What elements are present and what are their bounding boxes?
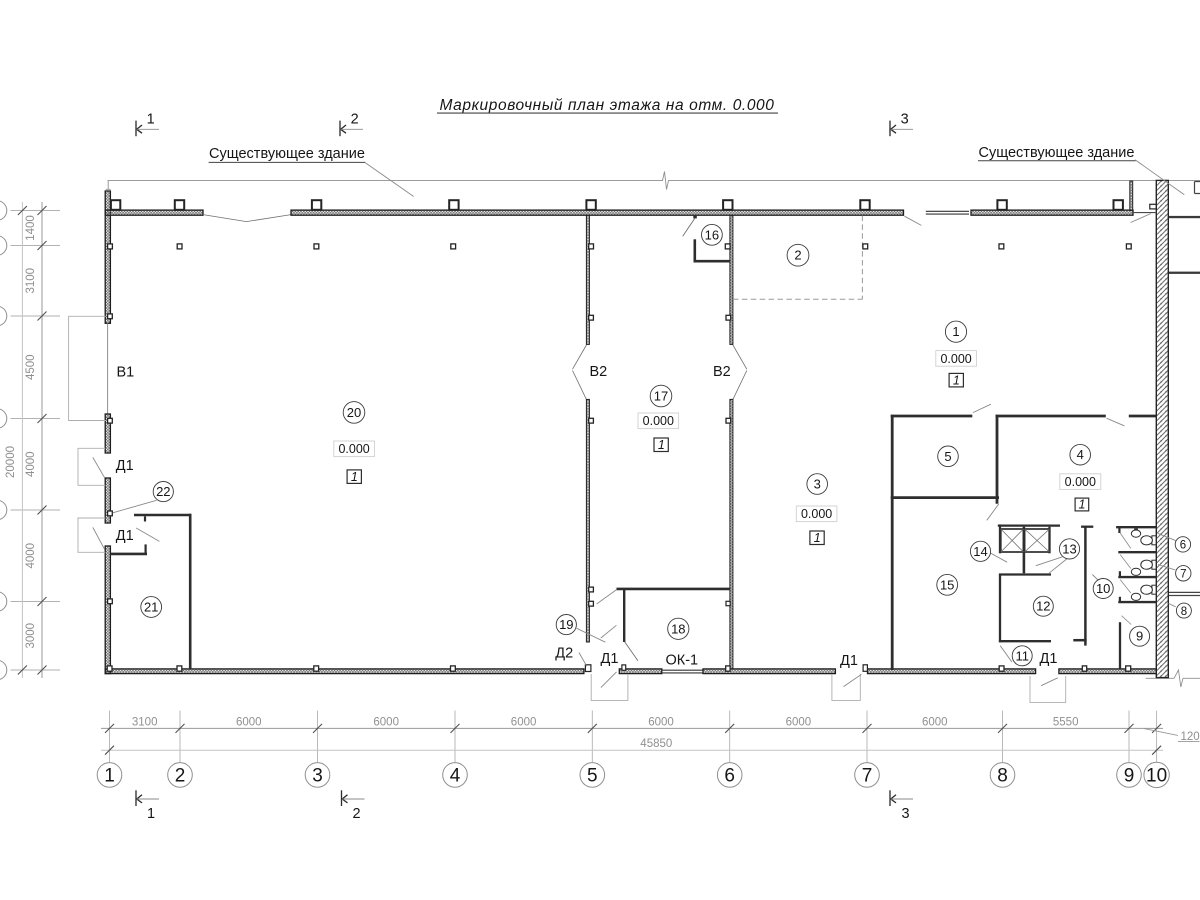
- svg-text:4: 4: [1077, 447, 1084, 462]
- svg-text:10: 10: [1146, 765, 1167, 786]
- svg-text:1: 1: [351, 470, 358, 484]
- svg-text:1400: 1400: [25, 215, 37, 241]
- svg-text:20000: 20000: [5, 446, 17, 478]
- svg-text:3000: 3000: [25, 623, 37, 649]
- svg-text:3: 3: [312, 765, 323, 786]
- svg-text:11: 11: [1015, 648, 1029, 663]
- svg-text:4500: 4500: [25, 354, 37, 380]
- svg-text:В2: В2: [713, 364, 731, 380]
- svg-text:1: 1: [952, 324, 959, 339]
- svg-text:6000: 6000: [648, 717, 674, 729]
- svg-text:6: 6: [1180, 540, 1186, 552]
- svg-text:3: 3: [901, 806, 909, 822]
- svg-text:1: 1: [147, 806, 155, 822]
- svg-text:Д1: Д1: [1040, 651, 1058, 667]
- svg-text:4000: 4000: [25, 451, 37, 477]
- svg-text:Д1: Д1: [601, 651, 619, 667]
- svg-text:6000: 6000: [236, 717, 262, 729]
- svg-text:7: 7: [1180, 569, 1186, 581]
- svg-text:0.000: 0.000: [338, 442, 369, 456]
- svg-text:120: 120: [1181, 731, 1200, 743]
- svg-text:14: 14: [973, 544, 987, 559]
- svg-text:ОК-1: ОК-1: [666, 652, 699, 668]
- svg-text:Существующее здание: Существующее здание: [209, 146, 365, 162]
- svg-text:3100: 3100: [25, 268, 37, 294]
- svg-text:Д1: Д1: [840, 653, 858, 669]
- svg-text:21: 21: [144, 600, 158, 615]
- svg-text:19: 19: [559, 617, 573, 632]
- svg-text:3: 3: [901, 111, 909, 127]
- svg-text:1: 1: [1079, 498, 1086, 512]
- svg-text:1: 1: [147, 111, 155, 127]
- svg-text:8: 8: [997, 765, 1008, 786]
- svg-text:5: 5: [944, 449, 951, 464]
- svg-text:3: 3: [814, 477, 821, 492]
- svg-text:2: 2: [352, 806, 360, 822]
- svg-text:6000: 6000: [511, 717, 537, 729]
- svg-text:8: 8: [1181, 606, 1187, 618]
- svg-text:0.000: 0.000: [643, 414, 674, 428]
- svg-text:2: 2: [175, 765, 186, 786]
- svg-text:6000: 6000: [786, 717, 812, 729]
- svg-text:В1: В1: [117, 365, 135, 381]
- svg-text:Д1: Д1: [116, 528, 134, 544]
- svg-text:Маркировочный план этажа на от: Маркировочный план этажа на отм. 0.000: [439, 97, 774, 114]
- svg-text:0.000: 0.000: [940, 352, 971, 366]
- svg-text:4000: 4000: [25, 543, 37, 569]
- svg-text:22: 22: [156, 484, 170, 499]
- svg-text:3100: 3100: [132, 717, 158, 729]
- svg-text:5: 5: [587, 765, 598, 786]
- svg-text:7: 7: [862, 765, 873, 786]
- svg-text:6000: 6000: [373, 717, 399, 729]
- svg-text:2: 2: [351, 111, 359, 127]
- svg-text:В2: В2: [590, 364, 608, 380]
- svg-text:5550: 5550: [1053, 717, 1079, 729]
- svg-text:45850: 45850: [640, 738, 672, 750]
- svg-text:2: 2: [794, 248, 801, 263]
- svg-text:17: 17: [654, 389, 668, 404]
- svg-text:6000: 6000: [922, 717, 948, 729]
- svg-text:9: 9: [1136, 629, 1143, 644]
- svg-text:Д2: Д2: [555, 646, 573, 662]
- svg-text:1: 1: [658, 438, 665, 452]
- svg-text:12: 12: [1036, 599, 1050, 614]
- svg-text:20: 20: [347, 405, 361, 420]
- svg-text:9: 9: [1124, 765, 1135, 786]
- svg-text:Д1: Д1: [116, 458, 134, 474]
- svg-text:Существующее здание: Существующее здание: [979, 145, 1135, 161]
- svg-text:16: 16: [705, 227, 719, 242]
- svg-text:0.000: 0.000: [1065, 475, 1096, 489]
- svg-text:4: 4: [450, 765, 461, 786]
- svg-text:1: 1: [814, 531, 821, 545]
- svg-text:1: 1: [104, 765, 115, 786]
- svg-text:0.000: 0.000: [801, 507, 832, 521]
- svg-text:15: 15: [940, 577, 954, 592]
- svg-text:6: 6: [724, 765, 735, 786]
- svg-text:18: 18: [671, 621, 685, 636]
- svg-text:13: 13: [1062, 541, 1076, 556]
- svg-text:1: 1: [953, 373, 960, 387]
- svg-text:10: 10: [1096, 581, 1110, 596]
